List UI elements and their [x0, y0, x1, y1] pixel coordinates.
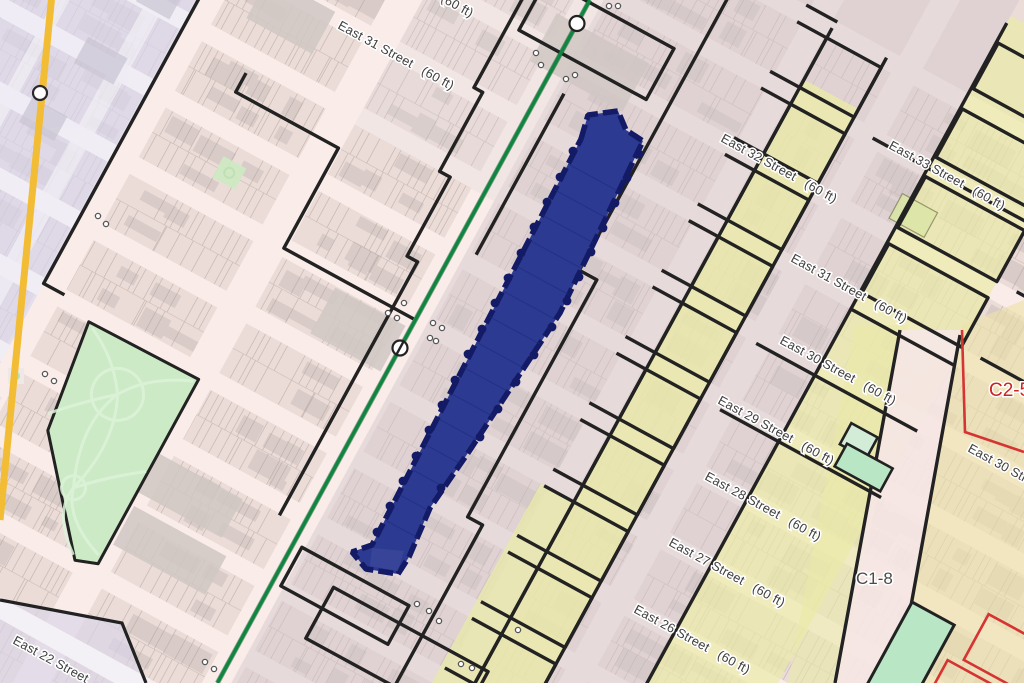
svg-text:C2-5: C2-5 — [989, 380, 1024, 401]
svg-text:C1-8: C1-8 — [856, 569, 893, 588]
